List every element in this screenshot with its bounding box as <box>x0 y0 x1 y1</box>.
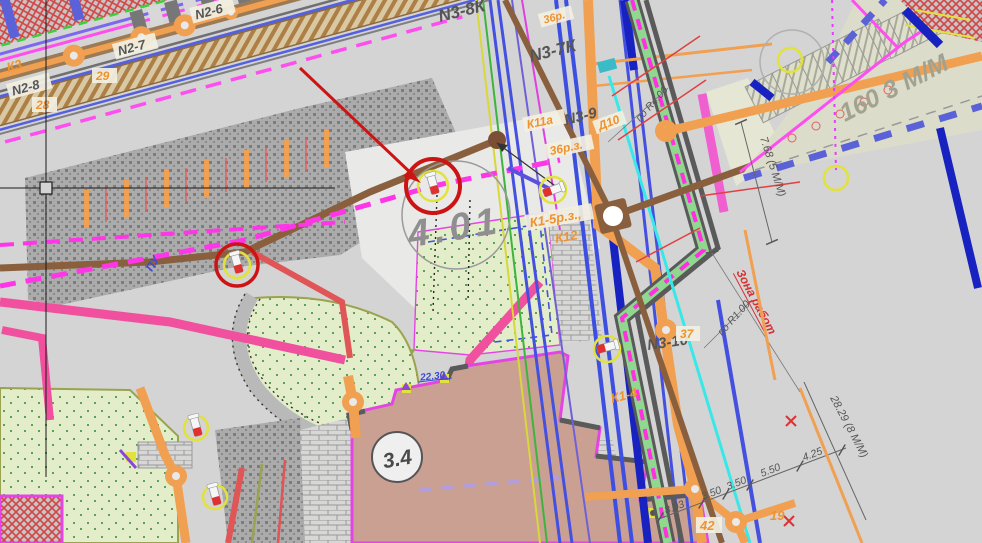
node-number: 37 <box>680 327 695 341</box>
structure-block <box>0 496 62 543</box>
cad-drawing-canvas[interactable]: 3.4 <box>0 0 982 543</box>
node-number: 29 <box>95 69 110 83</box>
node-number: 28 <box>35 98 50 112</box>
pipe-node <box>725 511 747 533</box>
pickbox <box>40 182 52 194</box>
node-number: 42 <box>699 518 715 533</box>
manhole-white-node <box>603 206 623 226</box>
pipe-node <box>342 391 364 413</box>
site-plan-drawing: 3.4 <box>0 0 982 543</box>
pipe-node <box>165 465 187 487</box>
node-number: 19 <box>770 508 785 523</box>
